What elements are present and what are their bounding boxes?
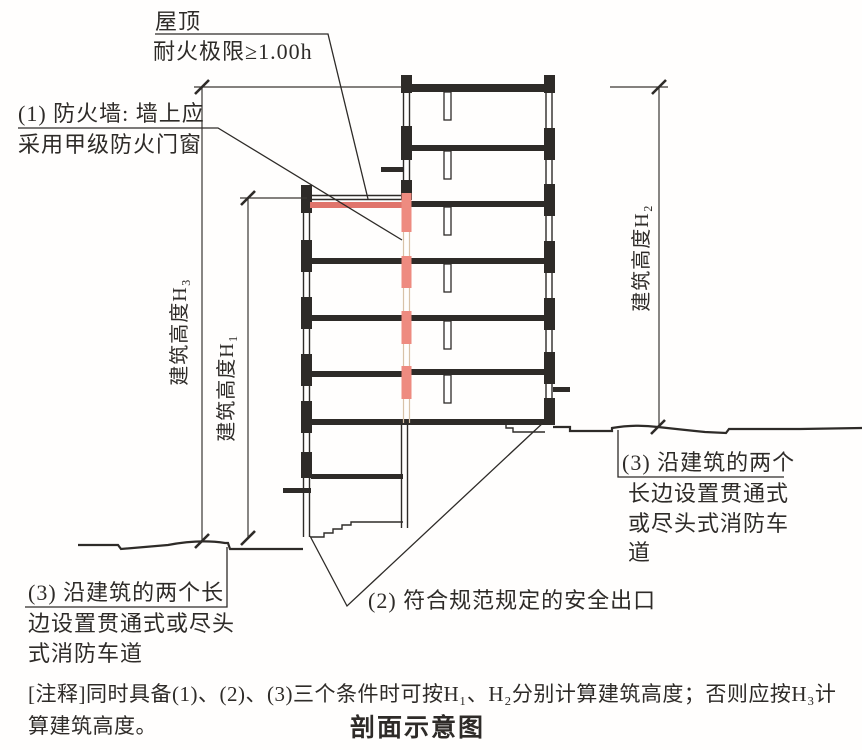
dim-label-h2: 建筑高度H₂ (630, 204, 653, 311)
ground-floor-slab (402, 419, 553, 425)
floor-slab (311, 258, 402, 264)
tall-building (401, 75, 570, 425)
window-spandrel-block (301, 297, 312, 329)
roof-note-line2: 耐火极限≥1.00h (153, 39, 313, 64)
window-spandrel-block (301, 240, 312, 272)
lower-building (283, 185, 408, 537)
fire-lane-right-line4: 道 (628, 540, 651, 565)
safety-exit-note: (2) 符合规范规定的安全出口 (368, 588, 656, 613)
safety-exit-leader (310, 421, 545, 606)
fire-rated-roof-band (310, 202, 403, 208)
ground-line-right (553, 426, 862, 433)
floor-slab (303, 419, 408, 425)
partition-stub (444, 92, 451, 120)
floor-slab (410, 369, 546, 375)
window-spandrel-block (544, 184, 555, 216)
floor-slab (410, 201, 546, 207)
tall-roof-slab (402, 84, 553, 92)
window-spandrel-block (544, 128, 555, 160)
floor-slab (311, 474, 403, 479)
partition-stub (444, 207, 451, 235)
window-spandrel-block (301, 401, 312, 433)
window-spandrel-block (401, 126, 412, 160)
fire-wall-red-segment (402, 311, 412, 344)
window-spandrel-block (401, 75, 412, 93)
footnote-line1: [注释]同时具备(1)、(2)、(3)三个条件时可按H₁、H₂分别计算建筑高度；… (28, 682, 836, 706)
firewall-note-line2: 采用甲级防火门窗 (18, 132, 202, 157)
floor-slab (410, 258, 546, 264)
window-spandrel-block (301, 354, 312, 386)
roof-note-line1: 屋顶 (155, 9, 201, 34)
dim-label-h3: 建筑高度H₃ (168, 278, 191, 385)
partition-stub (444, 151, 451, 179)
partition-stub (444, 375, 451, 403)
partition-stub (444, 264, 451, 292)
window-spandrel-block (544, 75, 555, 93)
footnote-line2: 算建筑高度。 (28, 714, 157, 738)
window-spandrel-block (544, 352, 555, 384)
fire-lane-left-line3: 式消防车道 (28, 641, 143, 666)
fire-lane-right-line2: 长边设置贯通式 (628, 481, 789, 506)
window-spandrel-block (544, 241, 555, 273)
floor-slab (410, 315, 546, 321)
fire-lane-right-line3: 或尽头式消防车 (628, 511, 789, 536)
fire-wall-red-segment (402, 256, 412, 288)
basement-terrain-steps (311, 522, 403, 537)
right-entrance-canopy (553, 387, 570, 392)
fire-wall-red-segment (402, 193, 412, 232)
window-spandrel-block (544, 298, 555, 330)
left-entrance-canopy (283, 488, 311, 493)
dim-label-h1: 建筑高度H₁ (215, 334, 238, 441)
floor-slab (410, 145, 546, 151)
interior-partition-wall (444, 92, 451, 403)
fire-lane-right-line1: (3) 沿建筑的两个 (622, 450, 795, 475)
fire-wall-red-segment (402, 366, 412, 399)
fire-lane-left-line2: 边设置贯通式或尽头 (28, 611, 235, 636)
fire-lane-left-line1: (3) 沿建筑的两个长 (28, 580, 224, 605)
fire-wall-canopy (381, 167, 404, 172)
ground-line-left (78, 541, 303, 549)
partition-stub (444, 321, 451, 349)
building-section-drawing: 建筑高度H₃ 建筑高度H₁ 建筑高度H₂ 屋顶 耐火极限≥1.00h (1) 防… (0, 0, 862, 750)
floor-slab (311, 371, 402, 377)
window-spandrel-block (301, 452, 312, 478)
section-diagram-page: 建筑高度H₃ 建筑高度H₁ 建筑高度H₂ 屋顶 耐火极限≥1.00h (1) 防… (0, 0, 862, 750)
diagram-caption: 剖面示意图 (350, 713, 485, 742)
firewall-note-line1: (1) 防火墙: 墙上应 (18, 101, 205, 126)
dimension-h2: 建筑高度H₂ (610, 80, 668, 434)
floor-slab (311, 315, 402, 321)
